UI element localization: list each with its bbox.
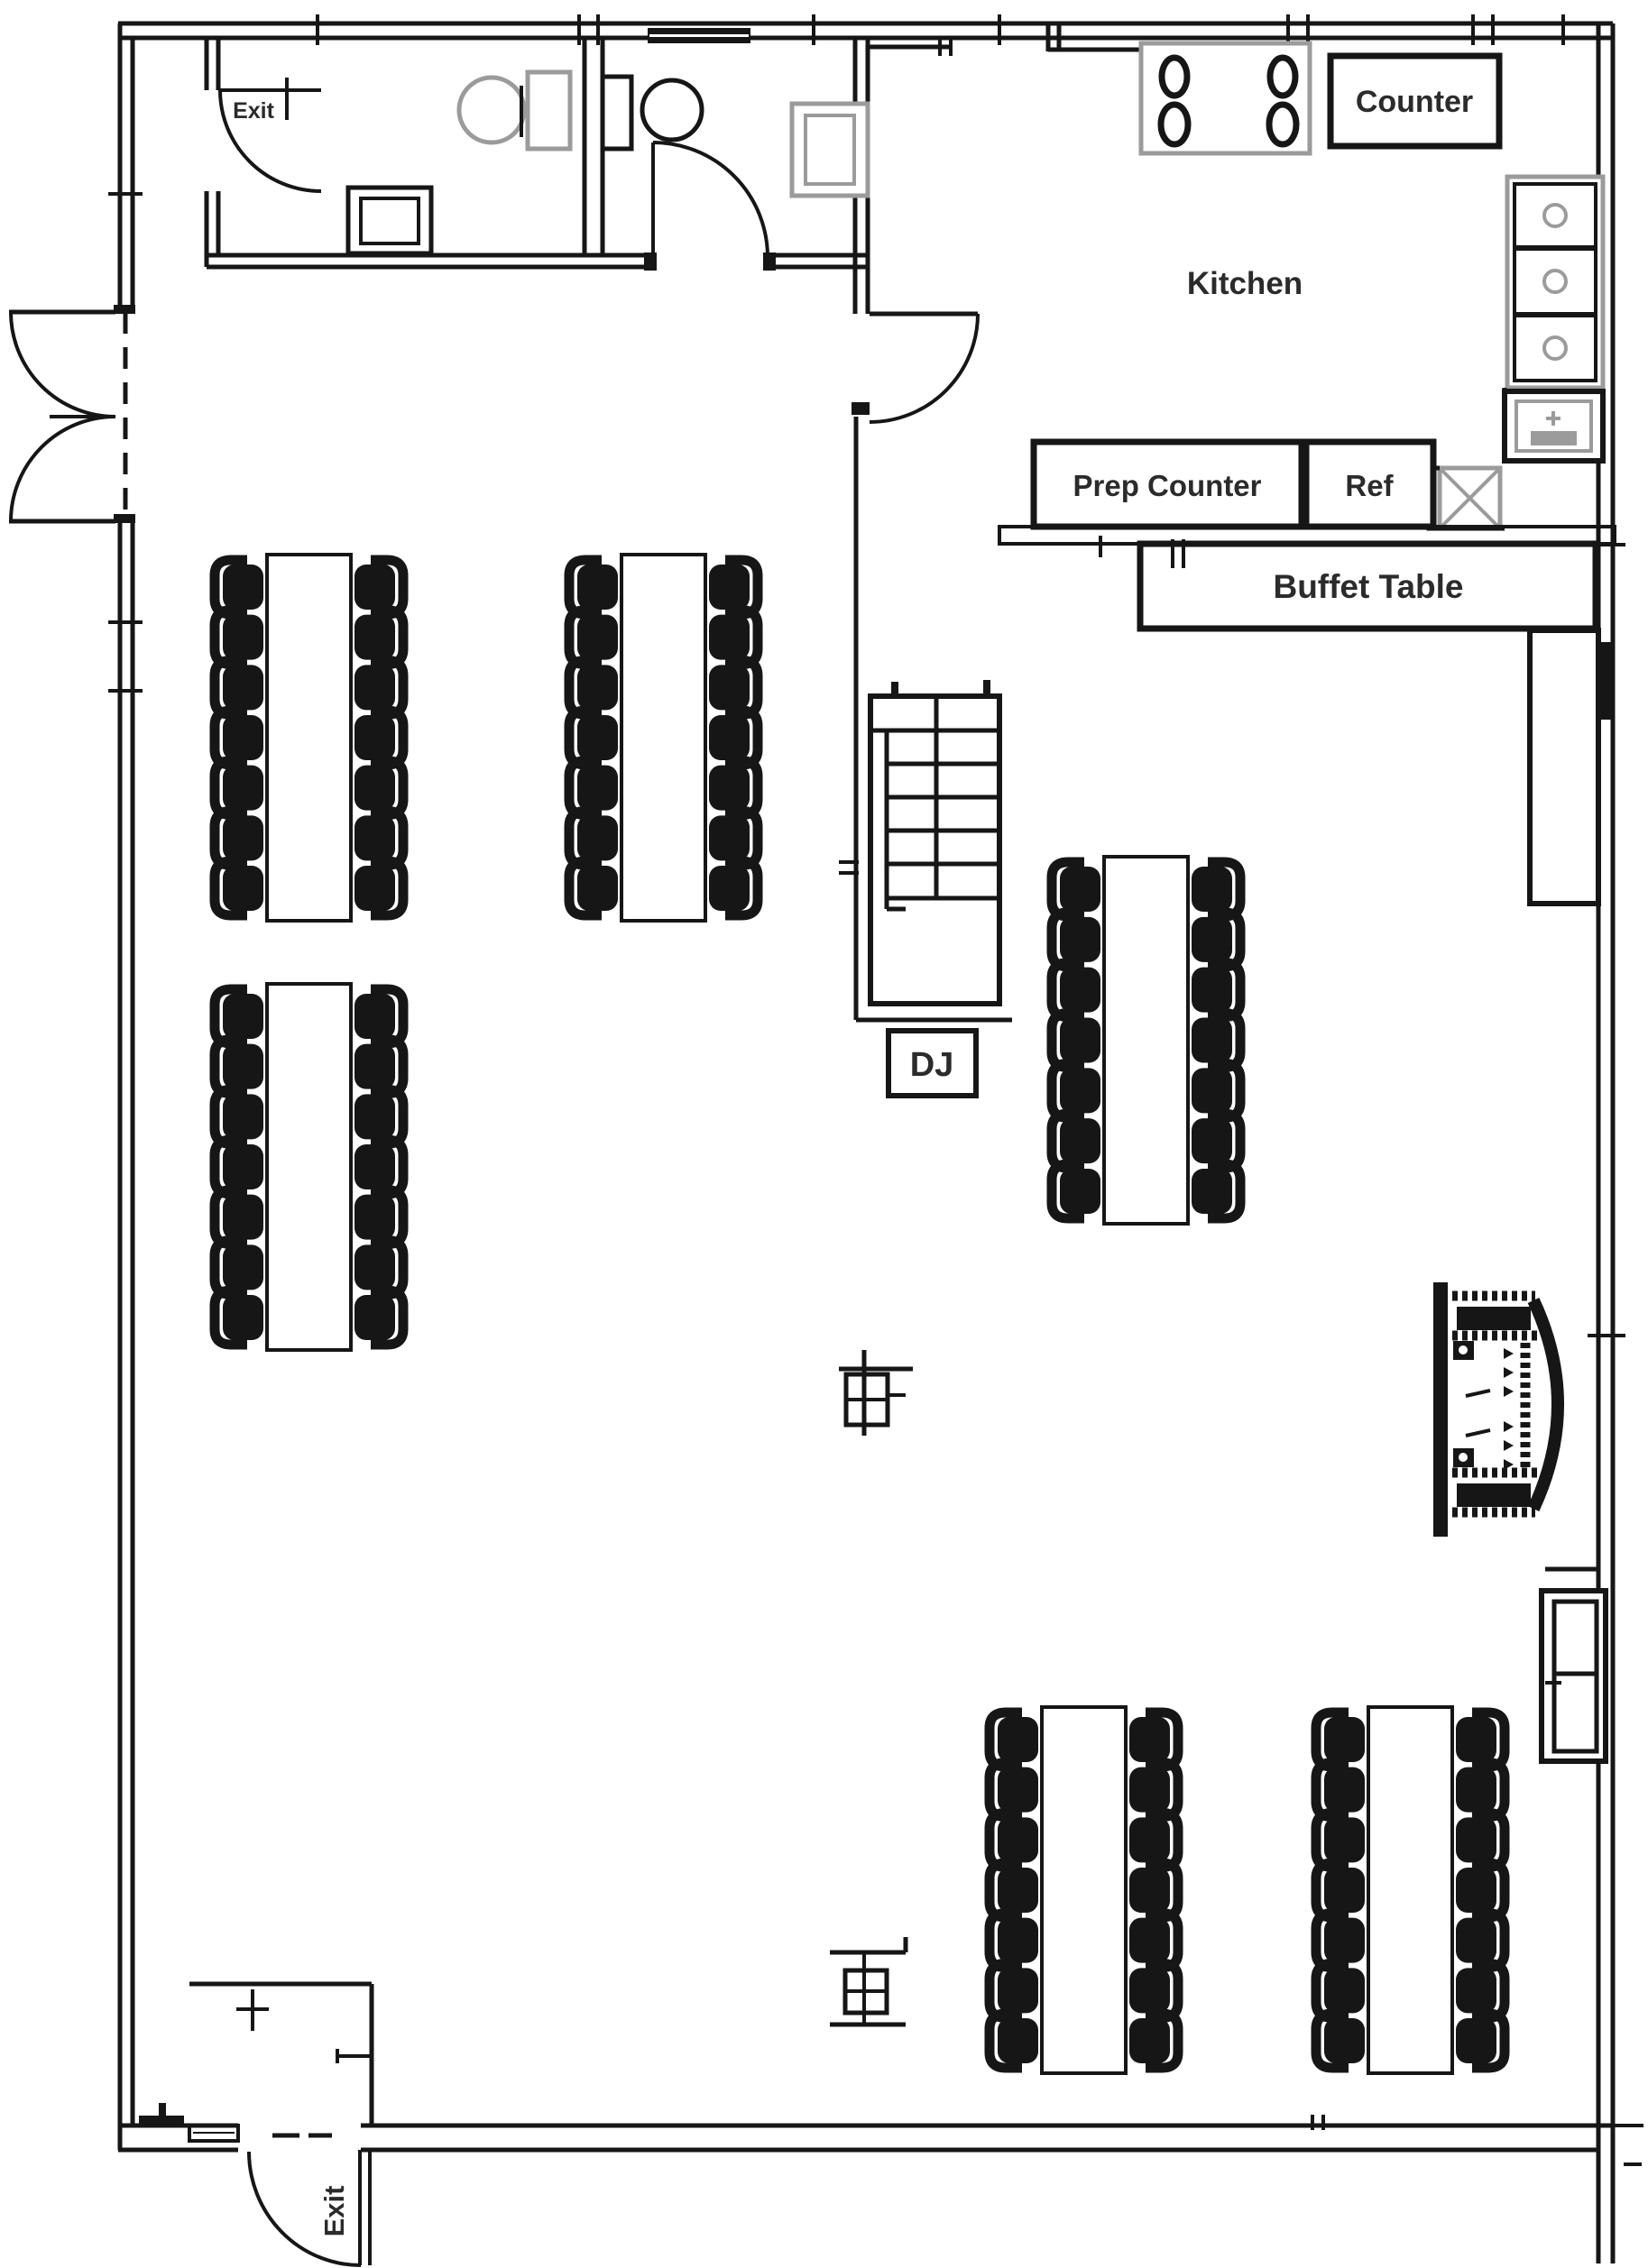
floor-plan: Exit xyxy=(0,0,1648,2268)
table-top xyxy=(267,984,351,1350)
door-swing-arc xyxy=(11,417,115,521)
staircase xyxy=(870,680,999,1004)
chair-right xyxy=(354,861,403,915)
kitchen-door xyxy=(852,314,978,422)
door-swing-arc xyxy=(11,312,115,417)
table-top xyxy=(621,555,705,921)
kitchen: Counter Kitchen xyxy=(852,23,1615,557)
counter-label: Counter xyxy=(1356,85,1473,119)
door-swing-arc xyxy=(870,314,978,422)
stage xyxy=(1433,1282,1558,1537)
buffet-table-label: Buffet Table xyxy=(1273,568,1463,605)
table-top xyxy=(267,555,351,921)
column-marker-2 xyxy=(830,1937,906,2025)
banquet-table xyxy=(990,1707,1178,2073)
banquet-table xyxy=(215,555,403,921)
banquet-table xyxy=(1316,1707,1505,2073)
table-top xyxy=(1104,857,1188,1224)
chair-right xyxy=(1456,2014,1505,2068)
wall-cabinet xyxy=(1542,1569,1606,1761)
vanity-fixture xyxy=(603,77,631,149)
chair-left xyxy=(215,861,263,915)
dj-booth: DJ xyxy=(888,1031,976,1096)
stage-arrows xyxy=(1504,1348,1514,1470)
stage-curve xyxy=(1533,1300,1558,1509)
cabinet-column xyxy=(1507,177,1603,388)
chair-right xyxy=(709,861,758,915)
ref-label: Ref xyxy=(1345,469,1394,502)
table-top xyxy=(1042,1707,1126,2073)
wall-window xyxy=(189,2126,238,2141)
chair-right xyxy=(1129,2014,1178,2068)
speaker-icon xyxy=(1453,1341,1474,1360)
changing-table-fixture xyxy=(792,104,868,196)
chair-left xyxy=(569,861,618,915)
kitchen-label: Kitchen xyxy=(1187,266,1303,301)
exit-top-label: Exit xyxy=(233,98,275,124)
column-marker-1 xyxy=(839,1350,913,1436)
exit-door-top xyxy=(220,78,321,191)
speaker-icon xyxy=(1453,1448,1474,1467)
serving-table xyxy=(1530,630,1598,904)
banquet-tables xyxy=(215,555,1505,2073)
chair-right xyxy=(354,1290,403,1345)
chair-left xyxy=(215,1290,263,1345)
table-top xyxy=(1368,1707,1452,2073)
door-swing-arc xyxy=(653,142,768,257)
restroom-sink-fixture xyxy=(642,80,702,140)
banquet-table xyxy=(1052,857,1240,1224)
dj-label: DJ xyxy=(910,1046,954,1084)
dishwasher-fixture xyxy=(1440,468,1500,528)
banquet-table xyxy=(569,555,758,921)
restroom-door xyxy=(653,142,768,257)
floor-plan-drawing: Exit xyxy=(0,0,1648,2268)
chair-left xyxy=(1316,2014,1365,2068)
floor-sink-fixture xyxy=(348,188,431,253)
chair-right xyxy=(1192,1164,1240,1218)
prep-counter-label: Prep Counter xyxy=(1073,469,1261,502)
restrooms: Exit xyxy=(207,28,868,314)
chair-left xyxy=(1052,1164,1100,1218)
banquet-table xyxy=(215,984,403,1350)
kitchen-sink-fixture xyxy=(1505,391,1603,461)
chair-left xyxy=(990,2014,1038,2068)
exit-bottom-label: Exit xyxy=(318,2186,350,2237)
exit-door-bottom xyxy=(249,2150,370,2265)
toilet-fixture xyxy=(459,72,570,149)
vestibule xyxy=(139,1984,372,2141)
stove-fixture xyxy=(1141,43,1310,153)
wall-pier xyxy=(1600,642,1615,720)
entry-double-door xyxy=(9,305,135,523)
